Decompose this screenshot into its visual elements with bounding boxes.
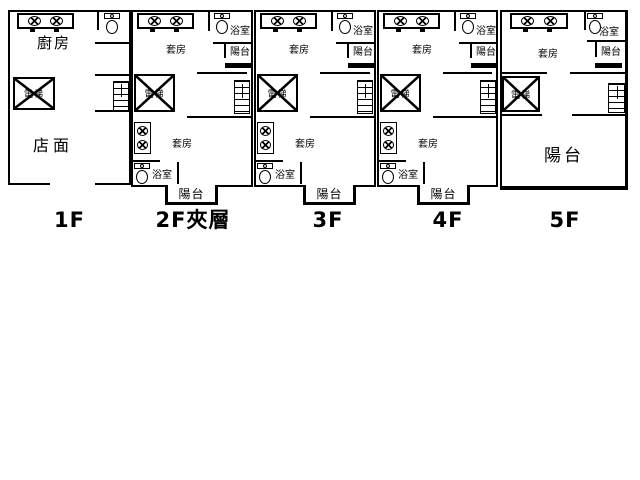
burner-icon xyxy=(544,16,557,26)
bathroom-label: 浴室 xyxy=(230,27,250,37)
burner-icon xyxy=(137,140,148,150)
floor-caption-2f: 2F夾層 xyxy=(132,209,254,232)
toilet-icon xyxy=(460,13,476,34)
mid-wall xyxy=(320,72,370,74)
stove-vertical-icon xyxy=(380,122,397,154)
toilet-icon xyxy=(380,163,396,184)
stove-vertical-icon xyxy=(257,122,274,154)
balcony-label: 陽台 xyxy=(430,185,456,202)
bathroom-label: 浴室 xyxy=(275,171,295,181)
floor-caption-4f: 4F xyxy=(387,209,509,232)
bath-wall xyxy=(95,42,131,44)
bathroom-label: 浴室 xyxy=(476,27,496,37)
burner-icon xyxy=(137,126,148,136)
suite-label: 套房 xyxy=(289,46,309,56)
balcony-label: 陽台 xyxy=(476,48,496,58)
mid-wall xyxy=(197,72,247,74)
railing-bar xyxy=(595,63,622,68)
suite-label: 套房 xyxy=(166,46,186,56)
mid-wall-right xyxy=(570,72,628,74)
stairs-icon xyxy=(113,81,129,111)
elevator-box: 電梯 xyxy=(502,76,540,112)
bath-wall xyxy=(213,42,253,44)
lower-wall xyxy=(187,116,253,118)
stove-knob-icon xyxy=(54,29,59,32)
bathroom-label: 浴室 xyxy=(353,27,373,37)
toilet-tank xyxy=(337,13,353,19)
burner-icon xyxy=(521,16,534,26)
bath-wall xyxy=(587,40,628,42)
balcony-label: 陽台 xyxy=(601,48,621,58)
stair-wall-bottom xyxy=(95,110,131,112)
door-jamb xyxy=(347,44,349,58)
balcony-label: 陽台 xyxy=(353,48,373,58)
elevator-box: 電梯 xyxy=(134,74,175,112)
burner-icon xyxy=(50,16,63,26)
toilet-tank xyxy=(460,13,476,19)
suite-label: 套房 xyxy=(418,140,438,150)
stairs-icon xyxy=(608,83,625,113)
floor-plan-canvas: 廚房 電梯 店面 浴室 xyxy=(0,0,640,480)
bathroom-label: 浴室 xyxy=(398,171,418,181)
burner-icon xyxy=(170,16,183,26)
balcony-box: 陽台 xyxy=(303,185,356,205)
burner-icon xyxy=(28,16,41,26)
floor-caption-5f: 5F xyxy=(504,209,626,232)
stove-icon xyxy=(137,13,194,29)
door-jamb xyxy=(595,42,597,57)
stove-knob-icon xyxy=(150,29,155,32)
stove-knob-icon xyxy=(30,29,35,32)
door-jamb xyxy=(224,44,226,58)
door-jamb xyxy=(470,44,472,58)
burner-icon xyxy=(383,126,394,136)
main-balcony-label: 陽台 xyxy=(500,116,628,190)
mid-wall xyxy=(443,72,492,74)
burner-icon xyxy=(148,16,161,26)
bathroom-label: 浴室 xyxy=(152,171,172,181)
toilet-bowl xyxy=(216,20,228,34)
elevator-label: 電梯 xyxy=(259,76,296,110)
railing-bar xyxy=(471,63,497,68)
toilet-icon xyxy=(337,13,353,34)
bath-partition-wall xyxy=(208,10,210,31)
stove-knob-icon xyxy=(420,29,425,32)
suite-label: 套房 xyxy=(295,140,315,150)
bath-wall-lower xyxy=(254,160,283,162)
floor-plan-2f: 浴室 陽台 套房 電梯 套房 浴室 陽台 xyxy=(131,10,253,187)
stairs-icon xyxy=(480,80,496,114)
railing-bar xyxy=(348,63,374,68)
stove-knob-icon xyxy=(396,29,401,32)
balcony-label: 陽台 xyxy=(230,48,250,58)
stove-icon xyxy=(510,13,568,29)
balcony-label: 陽台 xyxy=(316,185,342,202)
bathroom-label: 浴室 xyxy=(599,28,619,38)
balcony-box: 陽台 xyxy=(165,185,218,205)
elevator-box: 電梯 xyxy=(257,74,298,112)
stairs-icon xyxy=(234,80,250,114)
elevator-label: 電梯 xyxy=(382,76,419,110)
wall-bottom-left xyxy=(8,183,50,185)
burner-icon xyxy=(293,16,306,26)
toilet-bowl xyxy=(259,170,271,184)
toilet-tank xyxy=(380,163,396,169)
bath-partition-wall xyxy=(331,10,333,31)
toilet-icon xyxy=(134,163,150,184)
toilet-bowl xyxy=(462,20,474,34)
burner-icon xyxy=(271,16,284,26)
toilet-bowl xyxy=(136,170,148,184)
burner-icon xyxy=(394,16,407,26)
elevator-box: 電梯 xyxy=(13,77,55,110)
bath-wall-lower xyxy=(377,160,406,162)
stove-knob-icon xyxy=(273,29,278,32)
toilet-bowl xyxy=(339,20,351,34)
toilet-tank xyxy=(587,13,603,19)
stove-icon xyxy=(383,13,440,29)
stove-knob-icon xyxy=(297,29,302,32)
floor-plan-1f: 廚房 電梯 店面 xyxy=(8,10,131,185)
toilet-icon xyxy=(257,163,273,184)
door-jamb xyxy=(423,162,425,184)
mid-wall-left xyxy=(500,72,547,74)
kitchen-label: 廚房 xyxy=(37,36,71,51)
toilet-icon xyxy=(214,13,230,34)
bath-wall-lower xyxy=(131,160,160,162)
toilet-bowl xyxy=(382,170,394,184)
floor-caption-1f: 1F xyxy=(8,209,131,232)
stove-knob-icon xyxy=(523,29,528,32)
wall-bottom-right xyxy=(95,183,131,185)
bath-wall xyxy=(336,42,376,44)
floor-plan-3f: 浴室 陽台 套房 電梯 套房 浴室 陽台 xyxy=(254,10,376,187)
floor-caption-3f: 3F xyxy=(267,209,389,232)
suite-label: 套房 xyxy=(538,50,558,60)
elevator-label: 電梯 xyxy=(136,76,173,110)
elevator-label: 電梯 xyxy=(504,78,538,110)
toilet-tank xyxy=(104,13,120,19)
stove-icon xyxy=(260,13,317,29)
stove-vertical-icon xyxy=(134,122,151,154)
bath-partition-wall xyxy=(454,10,456,31)
lower-wall xyxy=(433,116,498,118)
floor-plan-4f: 浴室 陽台 套房 電梯 套房 浴室 陽台 xyxy=(377,10,498,187)
lower-wall xyxy=(310,116,376,118)
floor-plan-5f: 浴室 陽台 套房 電梯 陽台 xyxy=(500,10,628,190)
burner-icon xyxy=(383,140,394,150)
burner-icon xyxy=(260,140,271,150)
stove-knob-icon xyxy=(174,29,179,32)
balcony-box: 陽台 xyxy=(417,185,470,205)
door-jamb xyxy=(177,162,179,184)
elevator-label: 電梯 xyxy=(15,79,53,108)
bath-partition-wall xyxy=(584,10,586,30)
stove-icon xyxy=(17,13,74,29)
suite-label: 套房 xyxy=(412,46,432,56)
door-jamb xyxy=(300,162,302,184)
toilet-bowl xyxy=(106,20,118,34)
burner-icon xyxy=(260,126,271,136)
burner-icon xyxy=(416,16,429,26)
stove-knob-icon xyxy=(547,29,552,32)
toilet-tank xyxy=(134,163,150,169)
storefront-label: 店面 xyxy=(33,138,73,154)
bath-partition-wall xyxy=(97,10,99,30)
railing-bar xyxy=(225,63,251,68)
toilet-tank xyxy=(214,13,230,19)
toilet-tank xyxy=(257,163,273,169)
balcony-label: 陽台 xyxy=(178,185,204,202)
suite-label: 套房 xyxy=(172,140,192,150)
stair-wall-top xyxy=(95,74,131,76)
toilet-icon xyxy=(104,13,120,34)
elevator-box: 電梯 xyxy=(380,74,421,112)
stairs-icon xyxy=(357,80,373,114)
bath-wall xyxy=(459,42,498,44)
